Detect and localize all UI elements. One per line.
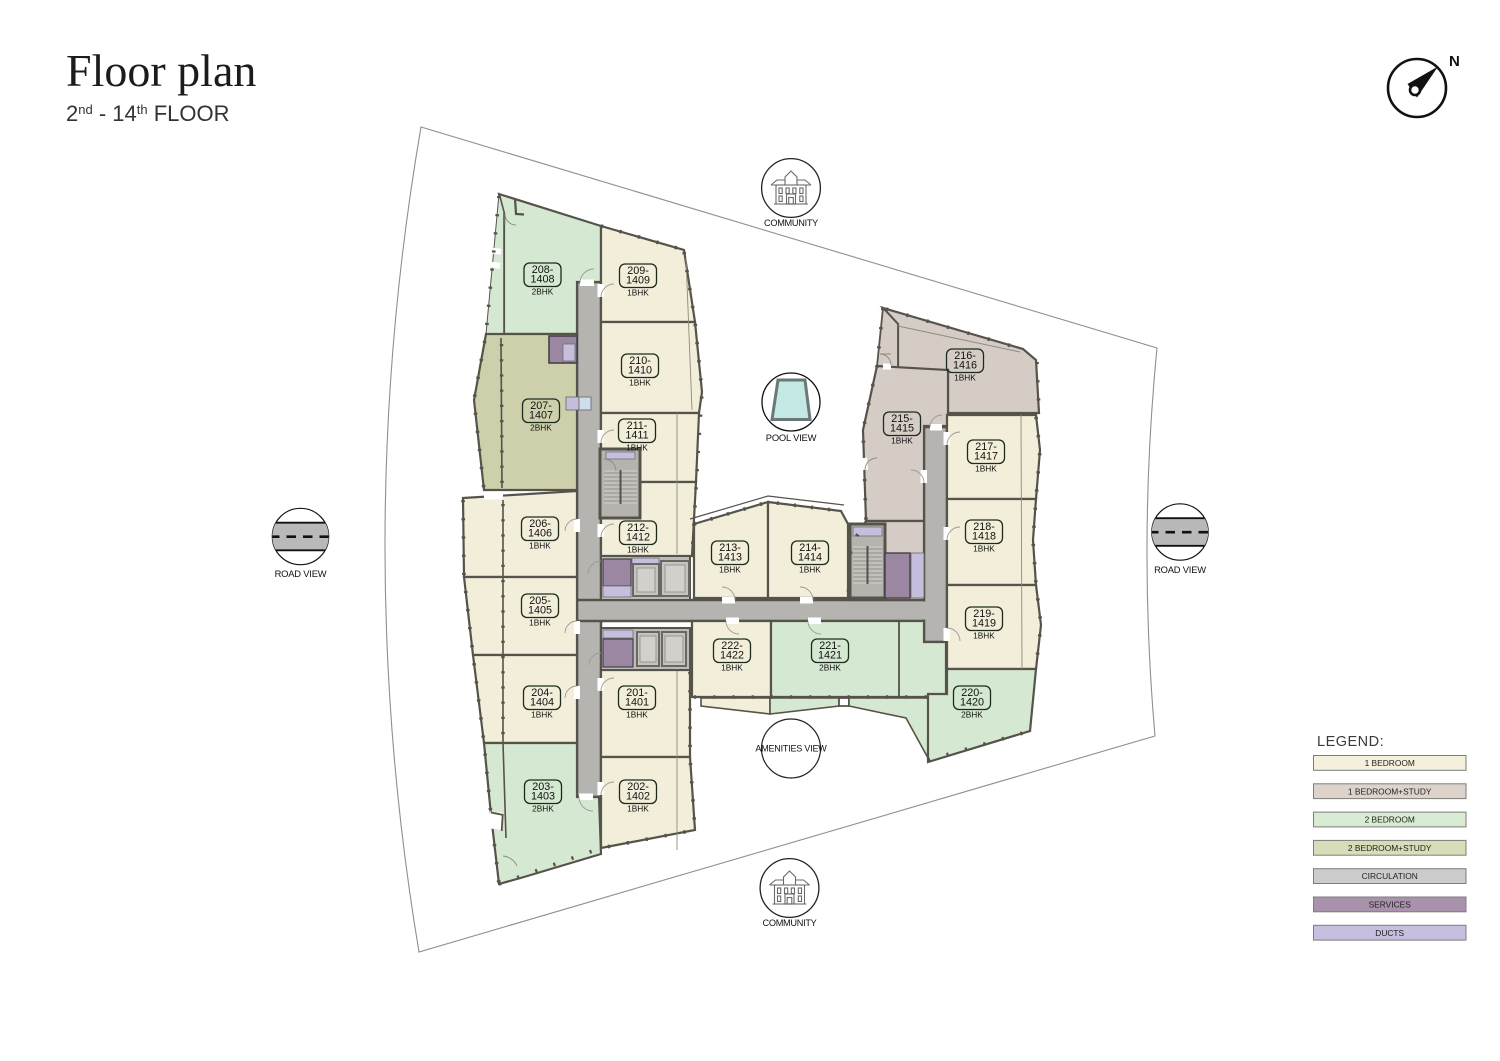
svg-text:ROAD VIEW: ROAD VIEW [275, 568, 327, 579]
svg-text:1BHK: 1BHK [954, 373, 976, 383]
svg-text:1BHK: 1BHK [531, 710, 553, 720]
svg-text:ROAD VIEW: ROAD VIEW [1154, 564, 1206, 575]
svg-text:1418: 1418 [972, 531, 996, 543]
svg-text:1410: 1410 [628, 365, 652, 377]
svg-text:1413: 1413 [718, 552, 742, 564]
svg-text:POOL VIEW: POOL VIEW [766, 432, 817, 443]
svg-text:2BHK: 2BHK [819, 663, 841, 673]
svg-text:1415: 1415 [890, 423, 914, 435]
svg-text:1BHK: 1BHK [891, 436, 913, 446]
svg-text:1BHK: 1BHK [629, 378, 651, 388]
svg-text:1BHK: 1BHK [529, 618, 551, 628]
svg-text:1 BEDROOM+STUDY: 1 BEDROOM+STUDY [1348, 786, 1432, 796]
svg-text:CIRCULATION: CIRCULATION [1362, 871, 1418, 881]
svg-text:1406: 1406 [528, 528, 552, 540]
svg-text:1 BEDROOM: 1 BEDROOM [1365, 758, 1415, 768]
svg-text:1411: 1411 [625, 430, 648, 442]
svg-text:1BHK: 1BHK [973, 631, 995, 641]
svg-text:COMMUNITY: COMMUNITY [763, 918, 817, 928]
svg-text:DUCTS: DUCTS [1375, 928, 1404, 938]
svg-text:1401: 1401 [625, 697, 649, 709]
svg-text:2BHK: 2BHK [532, 804, 554, 814]
svg-text:1407: 1407 [529, 410, 553, 422]
svg-text:1421: 1421 [818, 650, 842, 662]
svg-text:1416: 1416 [953, 360, 977, 372]
svg-text:1BHK: 1BHK [975, 464, 997, 474]
svg-text:1BHK: 1BHK [627, 804, 649, 814]
svg-text:1BHK: 1BHK [721, 663, 743, 673]
svg-text:1409: 1409 [626, 275, 650, 287]
svg-text:1414: 1414 [798, 552, 822, 564]
svg-text:Floor plan: Floor plan [66, 45, 256, 96]
svg-text:1BHK: 1BHK [627, 545, 649, 555]
svg-text:1420: 1420 [960, 697, 984, 709]
svg-text:1419: 1419 [972, 618, 996, 630]
svg-text:2nd - 14th FLOOR: 2nd - 14th FLOOR [66, 101, 230, 126]
svg-text:2BHK: 2BHK [961, 710, 983, 720]
svg-text:1BHK: 1BHK [799, 565, 821, 575]
svg-text:1412: 1412 [626, 532, 650, 544]
svg-text:1403: 1403 [531, 791, 555, 803]
svg-text:1BHK: 1BHK [627, 288, 649, 298]
svg-text:1BHK: 1BHK [626, 443, 648, 453]
svg-text:1404: 1404 [530, 697, 554, 709]
svg-text:AMENITIES VIEW: AMENITIES VIEW [755, 744, 827, 754]
svg-text:SERVICES: SERVICES [1369, 900, 1412, 910]
svg-text:N: N [1449, 53, 1460, 70]
svg-text:1BHK: 1BHK [973, 544, 995, 554]
svg-text:1408: 1408 [530, 274, 554, 286]
svg-text:1BHK: 1BHK [719, 565, 741, 575]
svg-text:1BHK: 1BHK [626, 710, 648, 720]
svg-text:2 BEDROOM+STUDY: 2 BEDROOM+STUDY [1348, 843, 1432, 853]
svg-text:LEGEND:: LEGEND: [1317, 734, 1384, 750]
svg-text:2BHK: 2BHK [530, 423, 552, 433]
svg-text:1BHK: 1BHK [529, 541, 551, 551]
svg-text:1402: 1402 [626, 791, 650, 803]
svg-text:1405: 1405 [528, 605, 552, 617]
svg-text:1422: 1422 [720, 650, 744, 662]
svg-text:COMMUNITY: COMMUNITY [764, 218, 818, 228]
svg-text:2 BEDROOM: 2 BEDROOM [1365, 815, 1415, 825]
svg-text:2BHK: 2BHK [532, 287, 554, 297]
svg-text:1417: 1417 [974, 451, 998, 463]
